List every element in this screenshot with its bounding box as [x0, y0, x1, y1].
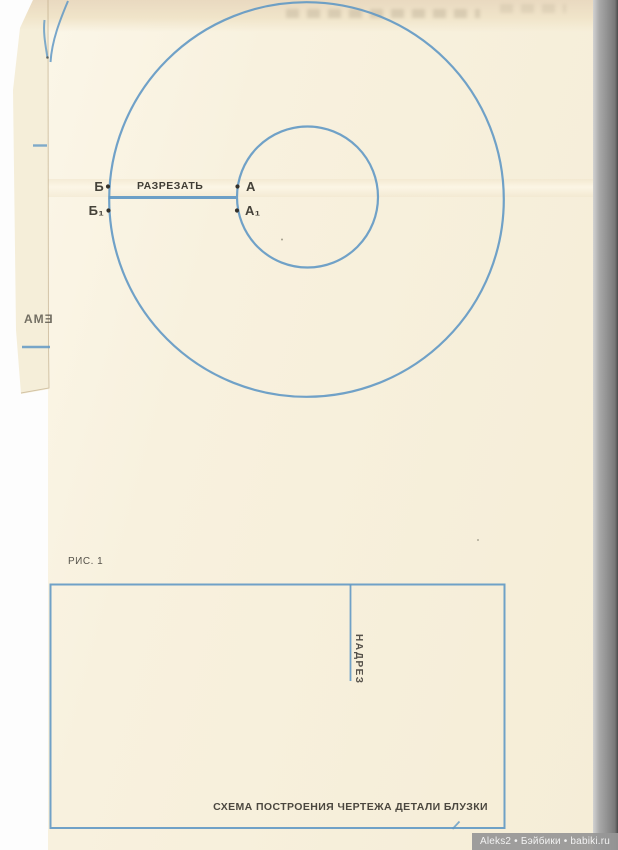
paper-sheet — [48, 0, 593, 850]
bleedthrough-mirrored-text: ЕМА — [23, 312, 53, 326]
paper-crease-band — [48, 179, 593, 197]
bleedthrough-smudge — [286, 9, 480, 18]
point-label-a1: А₁ — [245, 203, 260, 218]
point-label-b1: Б₁ — [82, 203, 104, 218]
figure1-caption: РИС. 1 — [68, 556, 103, 567]
point-label-a: А — [246, 179, 256, 194]
point-label-b: Б — [86, 179, 104, 194]
watermark-badge: Aleks2 • Бэйбики • babiki.ru — [472, 833, 618, 850]
scanner-edge-shadow — [593, 0, 618, 850]
bleedthrough-smudge — [500, 4, 566, 13]
scheme-caption: СХЕМА ПОСТРОЕНИЯ ЧЕРТЕЖА ДЕТАЛИ БЛУЗКИ — [213, 801, 488, 813]
scanned-pattern-page: Б Б₁ А А₁ РАЗРЕЗАТЬ РИС. 1 НАДРЕЗ СХЕМА … — [0, 0, 618, 850]
cut-instruction-label: РАЗРЕЗАТЬ — [137, 180, 203, 192]
notch-label: НАДРЕЗ — [353, 634, 364, 688]
